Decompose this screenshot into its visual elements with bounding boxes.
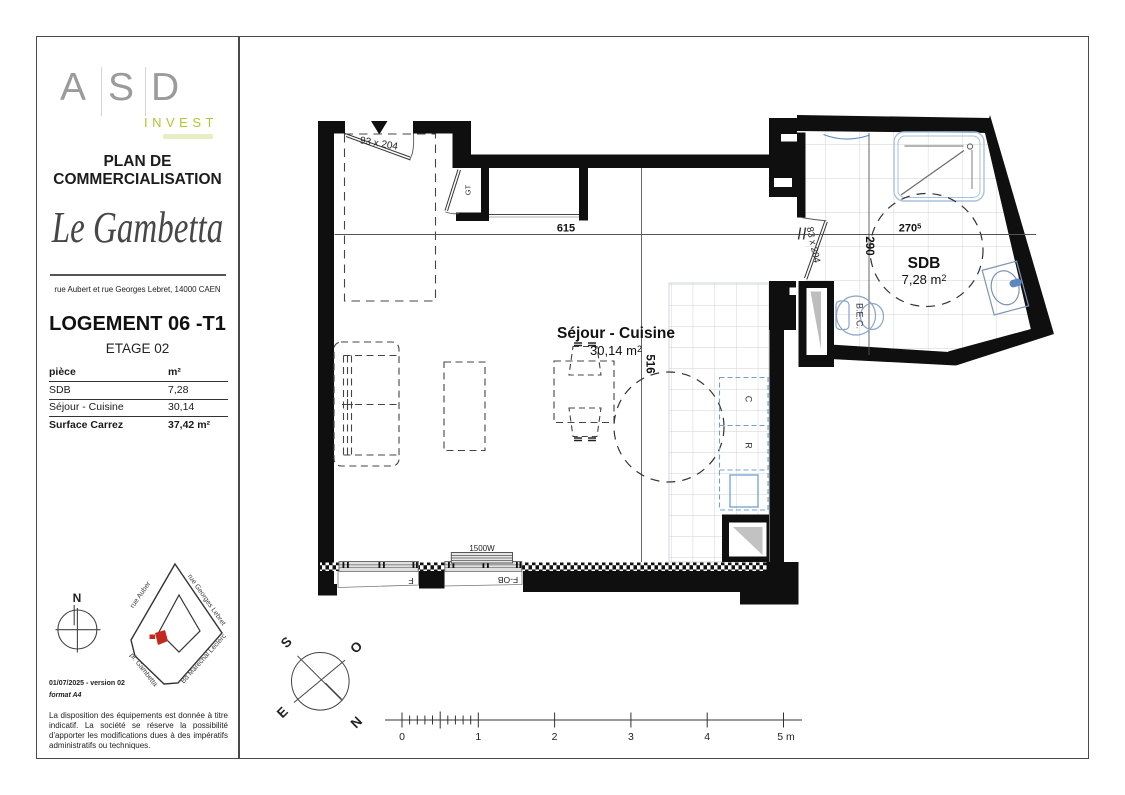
svg-text:F-OB: F-OB xyxy=(498,575,519,585)
svg-text:E: E xyxy=(274,704,291,721)
svg-text:C: C xyxy=(744,396,754,403)
svg-text:Séjour - Cuisine: Séjour - Cuisine xyxy=(557,325,675,342)
svg-text:O: O xyxy=(347,638,365,656)
svg-text:0: 0 xyxy=(399,731,405,743)
svg-text:93 x 204: 93 x 204 xyxy=(359,135,399,153)
svg-text:290: 290 xyxy=(863,236,875,255)
svg-text:30,14 m2: 30,14 m2 xyxy=(590,343,642,358)
svg-text:4: 4 xyxy=(704,731,710,743)
svg-text:B.E.C.: B.E.C. xyxy=(855,303,865,329)
svg-text:F: F xyxy=(408,576,413,586)
svg-text:GT: GT xyxy=(464,184,473,195)
svg-text:3: 3 xyxy=(628,731,634,743)
svg-text:SDB: SDB xyxy=(908,255,941,272)
svg-text:1500W: 1500W xyxy=(469,544,495,553)
svg-text:2: 2 xyxy=(552,731,558,743)
svg-text:R: R xyxy=(744,442,754,449)
svg-text:615: 615 xyxy=(557,223,575,235)
svg-text:1: 1 xyxy=(475,731,481,743)
svg-text:N: N xyxy=(348,714,366,732)
svg-text:7,28 m2: 7,28 m2 xyxy=(902,272,947,287)
svg-text:S: S xyxy=(278,634,295,651)
svg-text:5 m: 5 m xyxy=(777,731,795,743)
svg-text:516: 516 xyxy=(644,354,656,373)
